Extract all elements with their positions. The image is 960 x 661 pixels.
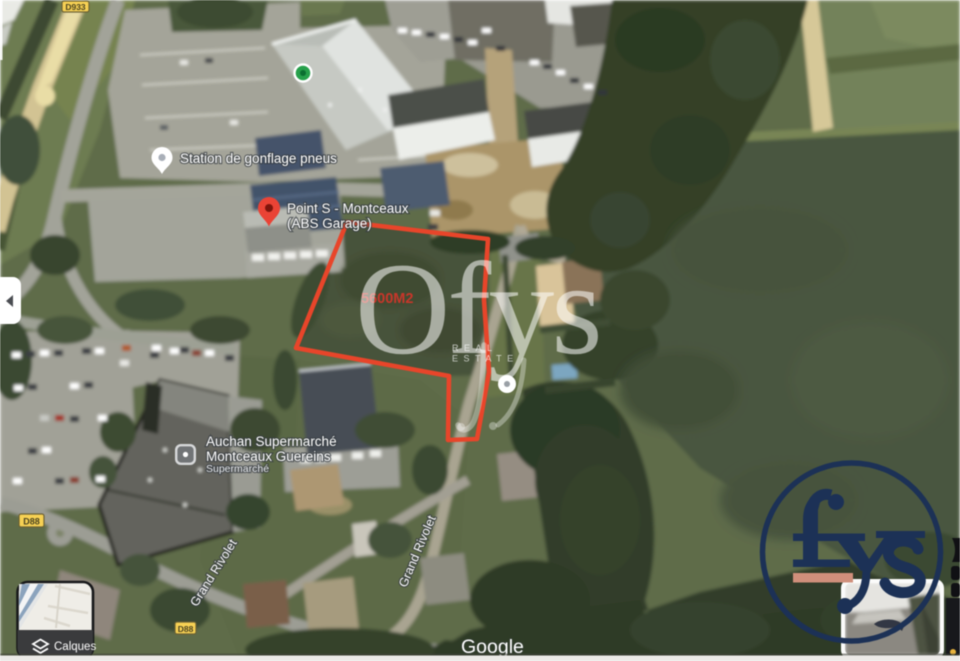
svg-text:Calques: Calques bbox=[54, 641, 96, 653]
svg-text:(ABS Garage): (ABS Garage) bbox=[287, 216, 372, 231]
svg-text:Station de gonflage pneus: Station de gonflage pneus bbox=[180, 151, 337, 166]
svg-text:Point S - Montceaux: Point S - Montceaux bbox=[287, 201, 409, 216]
svg-text:Auchan Supermarché: Auchan Supermarché bbox=[206, 434, 337, 449]
svg-text:Montceaux Guereins: Montceaux Guereins bbox=[206, 449, 331, 464]
svg-text:REAL: REAL bbox=[452, 343, 498, 353]
svg-text:Supermarché: Supermarché bbox=[206, 463, 269, 475]
svg-text:D88: D88 bbox=[23, 517, 40, 527]
svg-text:ESTATE: ESTATE bbox=[452, 354, 519, 364]
svg-text:D933: D933 bbox=[65, 2, 86, 12]
svg-text:D88: D88 bbox=[178, 624, 194, 634]
